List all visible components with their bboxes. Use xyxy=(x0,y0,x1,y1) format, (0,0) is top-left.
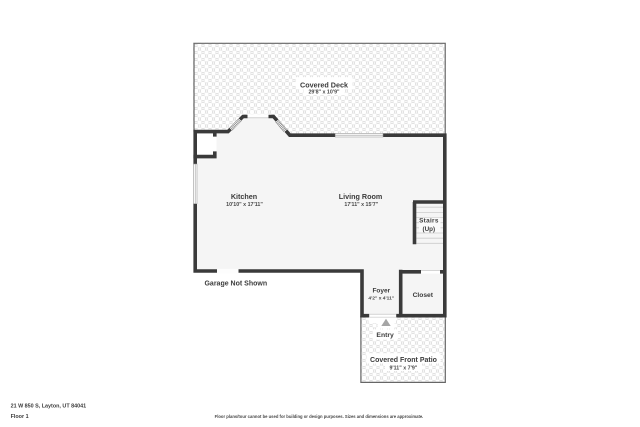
svg-text:Stairs: Stairs xyxy=(419,217,439,224)
svg-text:Floor plans/tour cannot be use: Floor plans/tour cannot be used for buil… xyxy=(215,414,424,419)
svg-text:Living Room: Living Room xyxy=(339,192,383,201)
svg-text:17'11" x 15'7": 17'11" x 15'7" xyxy=(344,202,378,208)
svg-text:Kitchen: Kitchen xyxy=(231,192,257,201)
svg-text:29'8" x 10'9": 29'8" x 10'9" xyxy=(308,90,340,96)
svg-text:Floor 1: Floor 1 xyxy=(11,414,29,420)
svg-text:10'10" x 17'11": 10'10" x 17'11" xyxy=(226,202,263,208)
svg-text:Foyer: Foyer xyxy=(372,288,390,295)
svg-text:Covered Deck: Covered Deck xyxy=(300,80,348,89)
svg-text:(Up): (Up) xyxy=(423,226,436,233)
svg-text:Closet: Closet xyxy=(413,292,434,299)
svg-text:Covered Front Patio: Covered Front Patio xyxy=(370,357,437,364)
svg-text:4'2" x 4'11": 4'2" x 4'11" xyxy=(368,296,394,302)
svg-text:9'11" x 7'9": 9'11" x 7'9" xyxy=(389,366,417,372)
svg-text:Entry: Entry xyxy=(376,332,394,339)
svg-text:Garage Not Shown: Garage Not Shown xyxy=(204,280,267,287)
svg-text:21 W 850 S, Layton, UT 84041: 21 W 850 S, Layton, UT 84041 xyxy=(11,404,87,410)
